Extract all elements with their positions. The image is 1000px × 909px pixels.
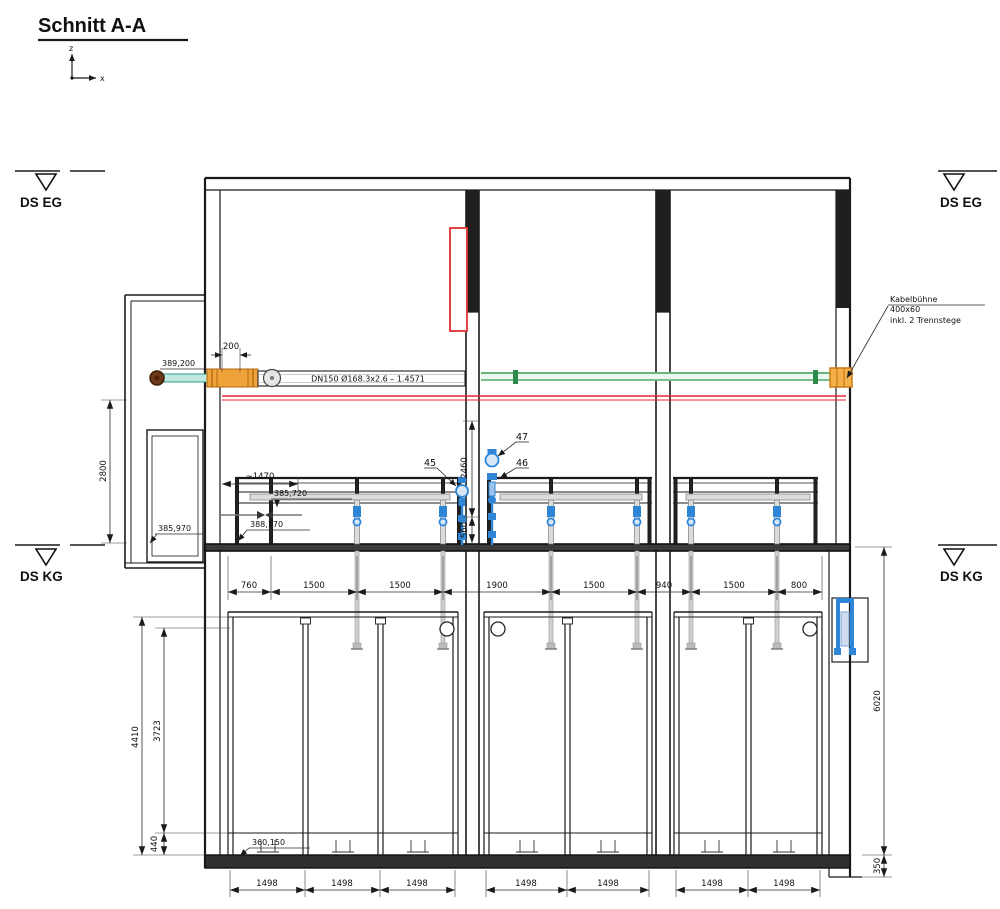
dim-200: 200	[211, 342, 251, 372]
svg-text:940: 940	[656, 581, 672, 591]
cell-supports	[257, 840, 795, 852]
section-drawing: Schnitt A-A z x DS EG DS EG DS KG	[0, 0, 1000, 909]
pipe-spec-label: DN150 Ø168.3x2.6 – 1.4571	[311, 374, 425, 384]
svg-text:388,170: 388,170	[250, 520, 283, 529]
rim-penetration-icon	[440, 622, 454, 636]
valve-handwheel-icon	[486, 454, 499, 467]
title-block: Schnitt A-A z x	[38, 15, 188, 83]
svg-text:6020: 6020	[873, 690, 883, 712]
level-ds-eg-left: DS EG	[15, 171, 105, 210]
pipe-run: DN150 Ø168.3x2.6 – 1.4571	[150, 368, 852, 400]
svg-text:1498: 1498	[406, 879, 428, 889]
svg-text:~1470: ~1470	[246, 472, 275, 482]
svg-text:1498: 1498	[256, 879, 278, 889]
level-triangle-icon	[36, 549, 56, 565]
svg-text:DS KG: DS KG	[20, 569, 63, 584]
svg-text:1498: 1498	[701, 879, 723, 889]
level-ds-eg-right: DS EG	[938, 171, 997, 210]
annex-door-outer	[147, 430, 203, 562]
axis-z-label: z	[69, 44, 73, 53]
wall-fill-2	[656, 190, 670, 312]
annex-door-inner	[152, 436, 198, 556]
cable-tray-section	[830, 368, 852, 387]
svg-text:DS EG: DS EG	[940, 195, 982, 210]
svg-text:Kabelbühne: Kabelbühne	[890, 295, 938, 304]
svg-text:1498: 1498	[597, 879, 619, 889]
svg-text:560: 560	[460, 522, 470, 538]
svg-text:1500: 1500	[583, 581, 605, 591]
drawing-title: Schnitt A-A	[38, 15, 146, 37]
svg-text:350: 350	[873, 858, 883, 874]
svg-text:385,720: 385,720	[274, 489, 307, 498]
level-triangle-icon	[36, 174, 56, 190]
svg-text:DS EG: DS EG	[20, 195, 62, 210]
svg-text:3723: 3723	[153, 720, 163, 742]
svg-text:400x60: 400x60	[890, 305, 920, 314]
wall-fill-right	[836, 190, 850, 308]
blind-flange-center	[154, 375, 160, 381]
dim-tank-left: 4410 3723 440	[131, 617, 230, 855]
svg-text:360,150: 360,150	[252, 838, 285, 847]
rim-penetration-icon	[491, 622, 505, 636]
axis-x-label: x	[100, 74, 105, 83]
svg-text:1498: 1498	[773, 879, 795, 889]
svg-text:800: 800	[791, 581, 807, 591]
svg-text:46: 46	[516, 458, 528, 469]
kg-floor-slab	[205, 544, 850, 551]
svg-text:DS KG: DS KG	[940, 569, 983, 584]
green-pipe-run	[481, 370, 848, 384]
dim-chain-bottom: 1498 1498 1498 1498 1498 1498 1498	[230, 870, 820, 897]
callout-46: 46	[500, 458, 529, 478]
tank-walls	[228, 612, 822, 855]
svg-text:2800: 2800	[99, 460, 109, 482]
svg-text:389,200: 389,200	[162, 359, 195, 368]
dn150-pipe: DN150 Ø168.3x2.6 – 1.4571	[258, 370, 465, 387]
anchor-plate	[563, 618, 573, 624]
svg-text:45: 45	[424, 458, 436, 469]
svg-text:1500: 1500	[303, 581, 325, 591]
svg-text:4410: 4410	[131, 726, 141, 748]
anchor-plate	[744, 618, 754, 624]
svg-text:385,970: 385,970	[158, 524, 191, 533]
foundation-slab	[205, 855, 850, 868]
pipe-hanger-icon	[513, 370, 518, 384]
valve-handwheel-icon	[456, 485, 468, 497]
svg-text:inkl. 2 Trennstege: inkl. 2 Trennstege	[890, 316, 961, 325]
svg-text:1500: 1500	[723, 581, 745, 591]
cable-tray-callout: Kabelbühne 400x60 inkl. 2 Trennstege	[847, 295, 985, 378]
platform-bay2	[487, 478, 652, 543]
axis-indicator: z x	[69, 44, 105, 83]
callout-47: 47	[498, 432, 529, 456]
svg-text:47: 47	[516, 432, 528, 443]
dim-2800: 2800	[99, 400, 127, 543]
valve-bowtie-icon	[257, 511, 265, 519]
level-ds-kg-right: DS KG	[938, 545, 997, 584]
drop-pipe-set	[351, 500, 783, 649]
svg-text:440: 440	[150, 836, 160, 852]
orange-pipe-spool	[207, 369, 258, 387]
teal-pipe-stub	[164, 374, 207, 382]
svg-text:1498: 1498	[331, 879, 353, 889]
svg-text:1500: 1500	[389, 581, 411, 591]
dim-right: 6020 350	[855, 547, 892, 877]
svg-text:1498: 1498	[515, 879, 537, 889]
dim-chain-mid: 760 1500 1500 1900 1500 940 1500 800	[228, 556, 822, 600]
pump-unit	[832, 598, 868, 662]
anchor-plate	[376, 618, 386, 624]
cad-viewport: Schnitt A-A z x DS EG DS EG DS KG	[0, 0, 1000, 909]
pipe-hanger-icon	[813, 370, 818, 384]
rim-penetration-icon	[803, 622, 817, 636]
tank-basins	[228, 612, 822, 855]
wall-pipe-bay1	[220, 511, 302, 519]
label-385970: 385,970	[150, 524, 205, 543]
level-triangle-icon	[944, 174, 964, 190]
label-389200: 389,200	[160, 359, 207, 369]
wall-fill-1	[466, 190, 479, 312]
svg-text:1900: 1900	[486, 581, 508, 591]
svg-text:2460: 2460	[460, 457, 470, 479]
red-duct	[450, 228, 467, 331]
anchor-plate	[301, 618, 311, 624]
callout-45: 45	[424, 458, 456, 486]
label-388170: 388,170	[238, 520, 310, 541]
level-triangle-icon	[944, 549, 964, 565]
level-ds-kg-left: DS KG	[15, 545, 105, 584]
svg-text:760: 760	[241, 581, 257, 591]
platform-bay1	[235, 478, 462, 543]
platform-frames	[220, 478, 818, 543]
svg-text:200: 200	[223, 342, 239, 352]
